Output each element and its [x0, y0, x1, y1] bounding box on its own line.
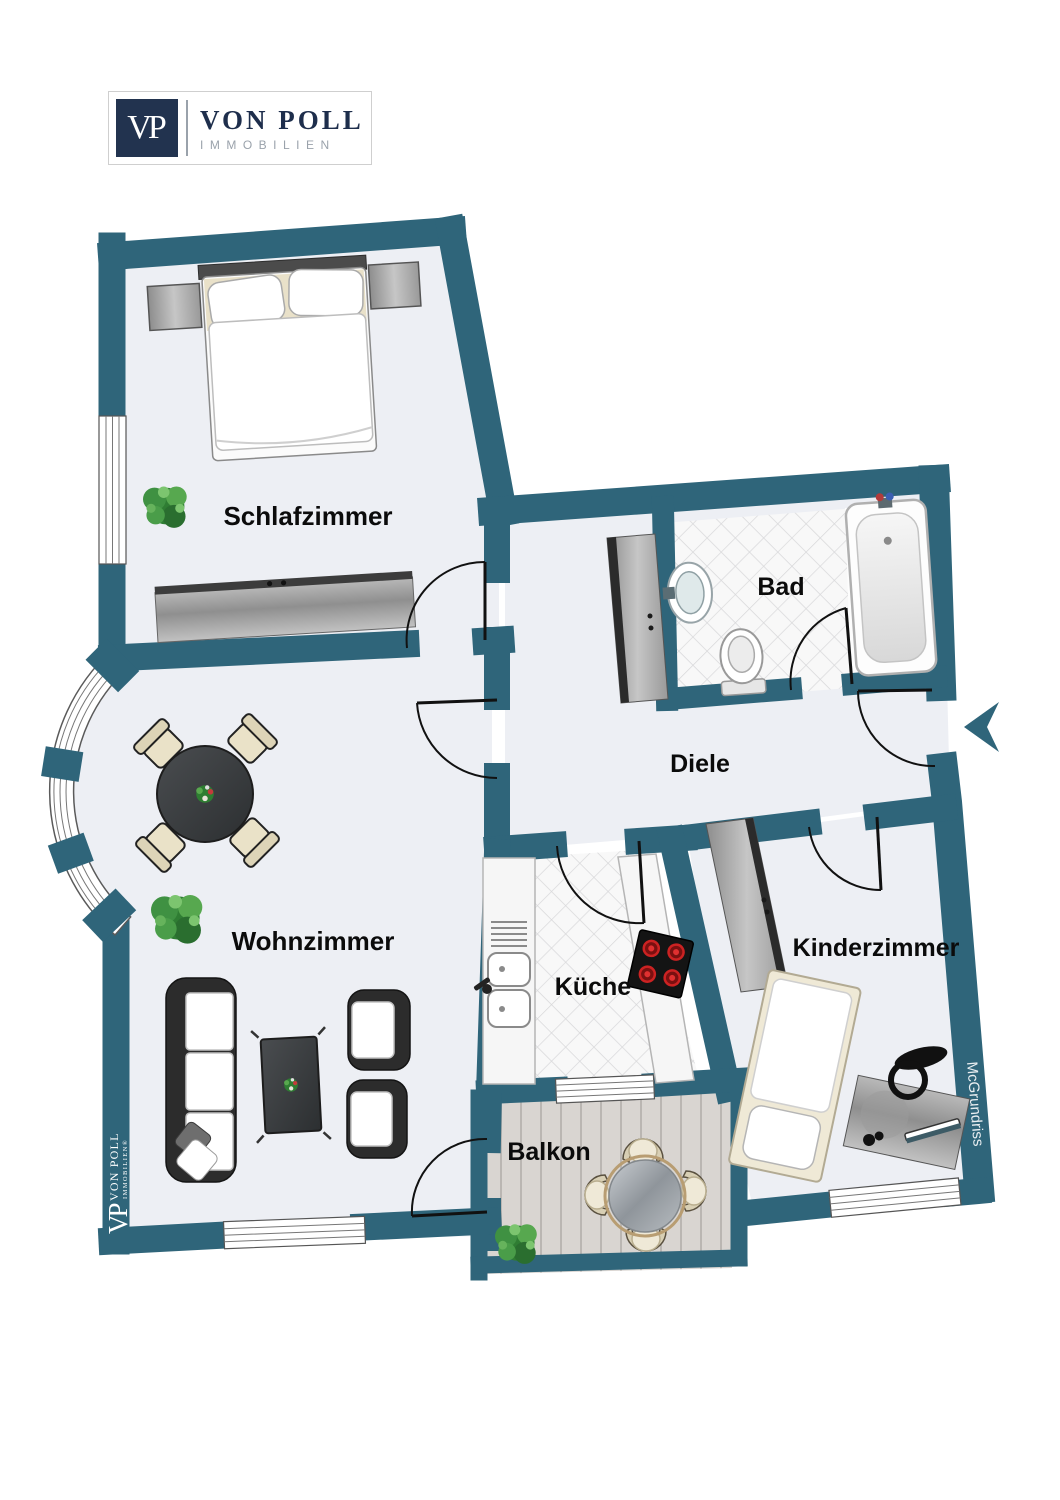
- bathtub: [845, 490, 937, 676]
- wall-wohn-bottom-right: [364, 1221, 488, 1227]
- label-diele: Diele: [670, 750, 730, 778]
- wall-kinderzimmer-bottom-left: [746, 1204, 836, 1213]
- wall-schlafzimmer-bottom: [112, 644, 406, 658]
- watermark-name: VON POLL: [107, 1132, 121, 1201]
- armchair-bottom: [347, 1080, 407, 1158]
- label-schlafzimmer: Schlafzimmer: [223, 501, 392, 531]
- plant-schlafzimmer: [143, 486, 187, 527]
- balcony-table: [609, 1160, 681, 1232]
- pillow-right: [289, 269, 363, 316]
- sofa: [166, 978, 236, 1183]
- wall-bad-bottom-right: [853, 677, 936, 684]
- armchair-top: [348, 990, 410, 1070]
- north-arrow-icon: [964, 702, 999, 752]
- wohnzimmer-window: [224, 1216, 366, 1248]
- bay-wall-pier: [41, 746, 83, 782]
- schlafzimmer-window: [99, 416, 126, 564]
- sink-faucet: [662, 587, 675, 600]
- watermark-subtitle: IMMOBILIEN®: [122, 1139, 129, 1199]
- floorplan-page: VP VON POLL IMMOBILIEN: [0, 0, 1060, 1500]
- label-balkon: Balkon: [507, 1138, 590, 1166]
- nightstand-right: [368, 262, 421, 309]
- table-plant: [196, 785, 214, 803]
- plant-wohnzimmer: [151, 895, 202, 944]
- stove: [627, 929, 694, 998]
- duvet: [209, 313, 374, 450]
- nightstand-left: [147, 283, 202, 330]
- double-bed: [202, 265, 377, 461]
- brand-watermark: VP VON POLL IMMOBILIEN®: [103, 1132, 133, 1234]
- plant-balkon: [495, 1224, 537, 1264]
- watermark-initials: VP: [103, 1204, 133, 1234]
- floor-plan-svg: Schlafzimmer Bad Diele Wohnzimmer Küche …: [0, 0, 1060, 1500]
- wall-kinderzimmer-top-right: [877, 808, 944, 816]
- label-kueche: Küche: [555, 973, 632, 1001]
- label-kinderzimmer: Kinderzimmer: [793, 934, 960, 962]
- label-bad: Bad: [757, 573, 804, 601]
- label-wohnzimmer: Wohnzimmer: [232, 926, 395, 956]
- kueche-window: [556, 1075, 655, 1103]
